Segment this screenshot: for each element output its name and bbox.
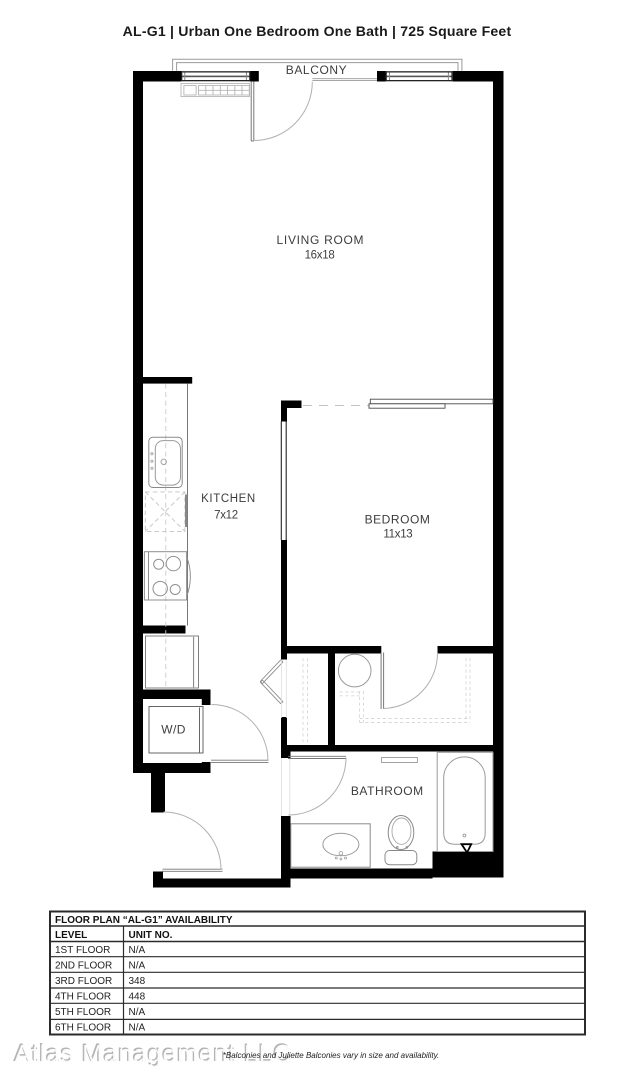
svg-text:BALCONY: BALCONY — [286, 63, 348, 77]
svg-text:3RD FLOOR: 3RD FLOOR — [55, 976, 112, 987]
svg-text:4TH FLOOR: 4TH FLOOR — [55, 992, 111, 1003]
svg-text:16x18: 16x18 — [305, 250, 335, 262]
svg-text:7x12: 7x12 — [214, 510, 238, 522]
svg-text:UNIT NO.: UNIT NO. — [129, 930, 173, 941]
svg-text:N/A: N/A — [129, 961, 146, 972]
svg-text:N/A: N/A — [129, 1007, 146, 1018]
svg-text:11x13: 11x13 — [383, 529, 412, 541]
svg-text:348: 348 — [129, 976, 146, 987]
svg-text:N/A: N/A — [129, 945, 146, 956]
svg-text:*Balconies and Juliette Balcon: *Balconies and Juliette Balconies vary i… — [223, 1051, 439, 1060]
svg-text:N/A: N/A — [129, 1023, 146, 1034]
svg-text:LEVEL: LEVEL — [55, 930, 87, 941]
svg-text:6TH FLOOR: 6TH FLOOR — [55, 1023, 111, 1034]
svg-text:448: 448 — [129, 992, 146, 1003]
svg-text:LIVING ROOM: LIVING ROOM — [277, 233, 365, 247]
svg-text:AL-G1 | Urban One Bedroom One: AL-G1 | Urban One Bedroom One Bath | 725… — [123, 23, 512, 39]
svg-text:FLOOR PLAN “AL-G1” AVAILABILIT: FLOOR PLAN “AL-G1” AVAILABILITY — [55, 915, 233, 926]
svg-text:BEDROOM: BEDROOM — [365, 513, 431, 527]
svg-text:BATHROOM: BATHROOM — [351, 784, 424, 798]
svg-text:2ND FLOOR: 2ND FLOOR — [55, 961, 112, 972]
svg-text:5TH FLOOR: 5TH FLOOR — [55, 1007, 111, 1018]
svg-text:1ST FLOOR: 1ST FLOOR — [55, 945, 110, 956]
svg-text:KITCHEN: KITCHEN — [201, 493, 256, 505]
svg-text:W/D: W/D — [161, 723, 186, 737]
